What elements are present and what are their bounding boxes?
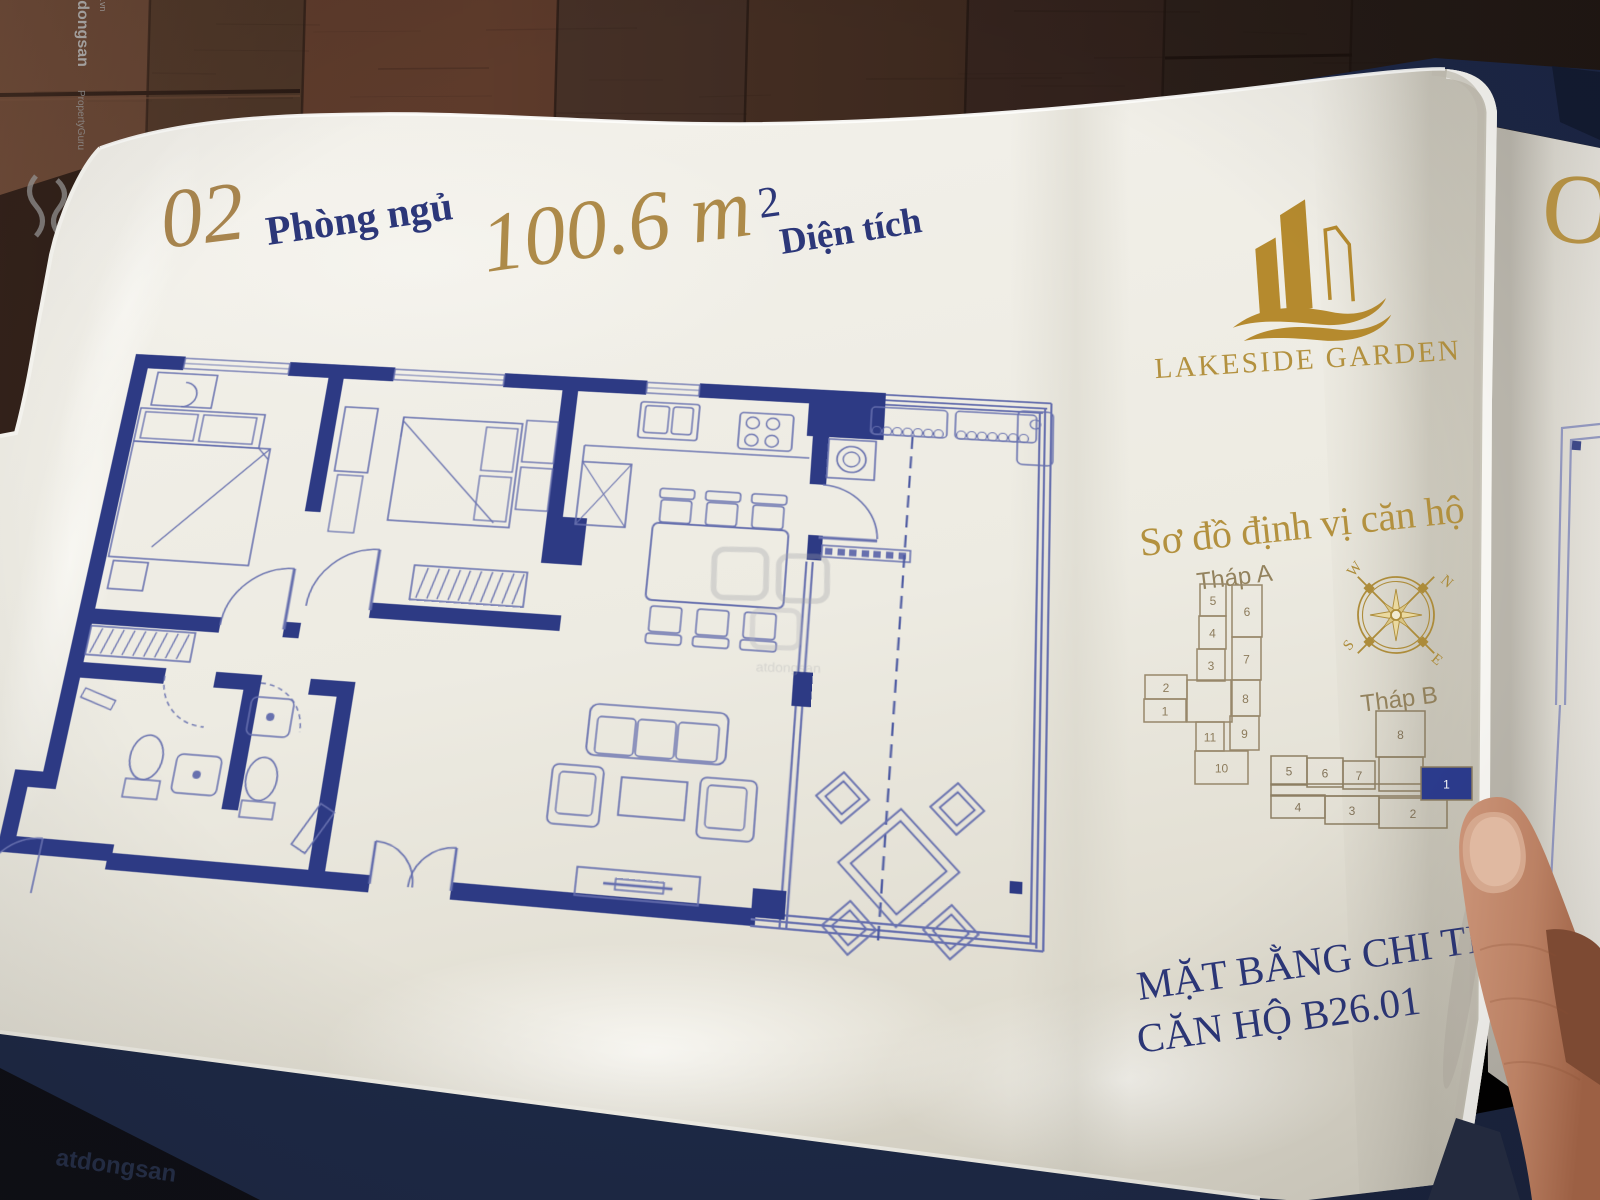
svg-text:atdongsan: atdongsan <box>756 661 821 676</box>
